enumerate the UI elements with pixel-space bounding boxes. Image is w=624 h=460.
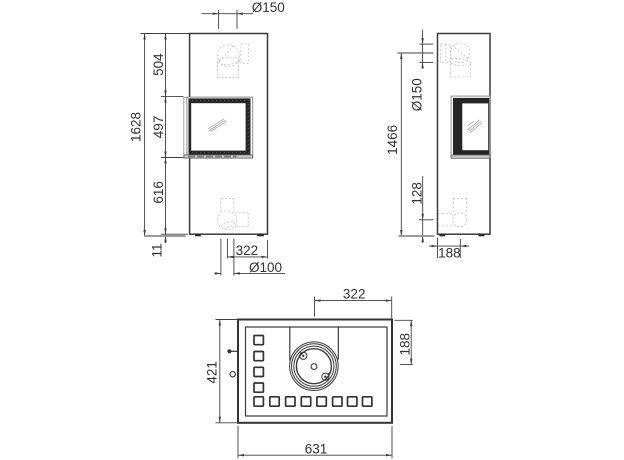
svg-text:322: 322 (343, 286, 366, 301)
svg-text:Ø150: Ø150 (252, 0, 285, 15)
svg-text:421: 421 (205, 361, 220, 384)
svg-text:188: 188 (398, 333, 413, 356)
svg-text:497: 497 (151, 116, 166, 139)
svg-text:1628: 1628 (129, 112, 144, 142)
svg-text:11: 11 (149, 243, 164, 257)
svg-text:128: 128 (410, 182, 425, 205)
svg-text:Ø150: Ø150 (409, 78, 424, 111)
svg-text:1466: 1466 (385, 125, 400, 155)
svg-text:616: 616 (151, 181, 166, 204)
svg-text:631: 631 (305, 442, 328, 457)
svg-text:504: 504 (151, 53, 166, 76)
svg-text:322: 322 (236, 243, 259, 258)
svg-text:Ø100: Ø100 (249, 260, 282, 275)
svg-text:188: 188 (438, 246, 461, 261)
